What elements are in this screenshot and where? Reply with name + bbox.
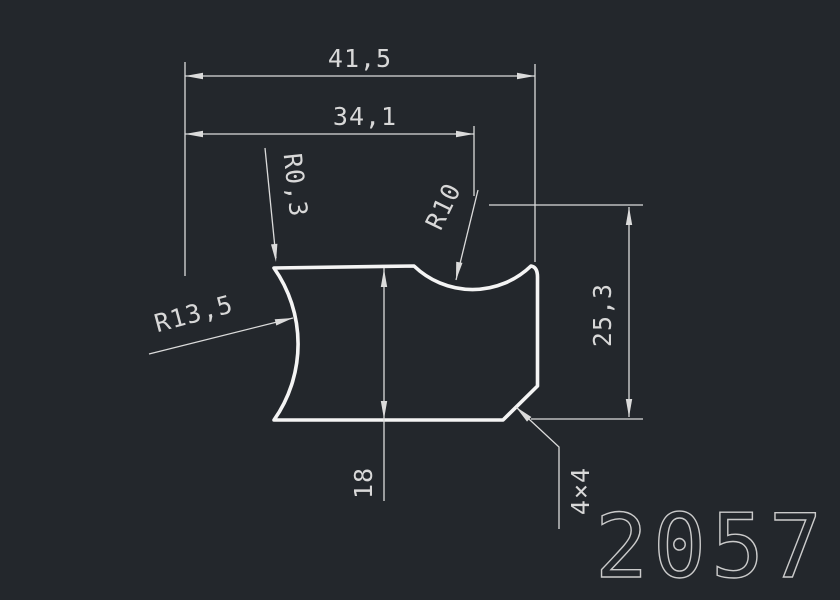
label-arc-center-offset: 34,1 xyxy=(333,102,397,131)
label-height-right: 25,3 xyxy=(588,283,617,347)
label-total-width: 41,5 xyxy=(328,44,392,73)
label-height-left: 18 xyxy=(349,467,378,499)
label-chamfer: 4×4 xyxy=(566,467,595,515)
part-number: 2057 xyxy=(595,495,827,598)
cad-drawing-canvas: 41,5 34,1 R0,3 R10 R13,5 25,3 18 4×4 205… xyxy=(0,0,840,600)
